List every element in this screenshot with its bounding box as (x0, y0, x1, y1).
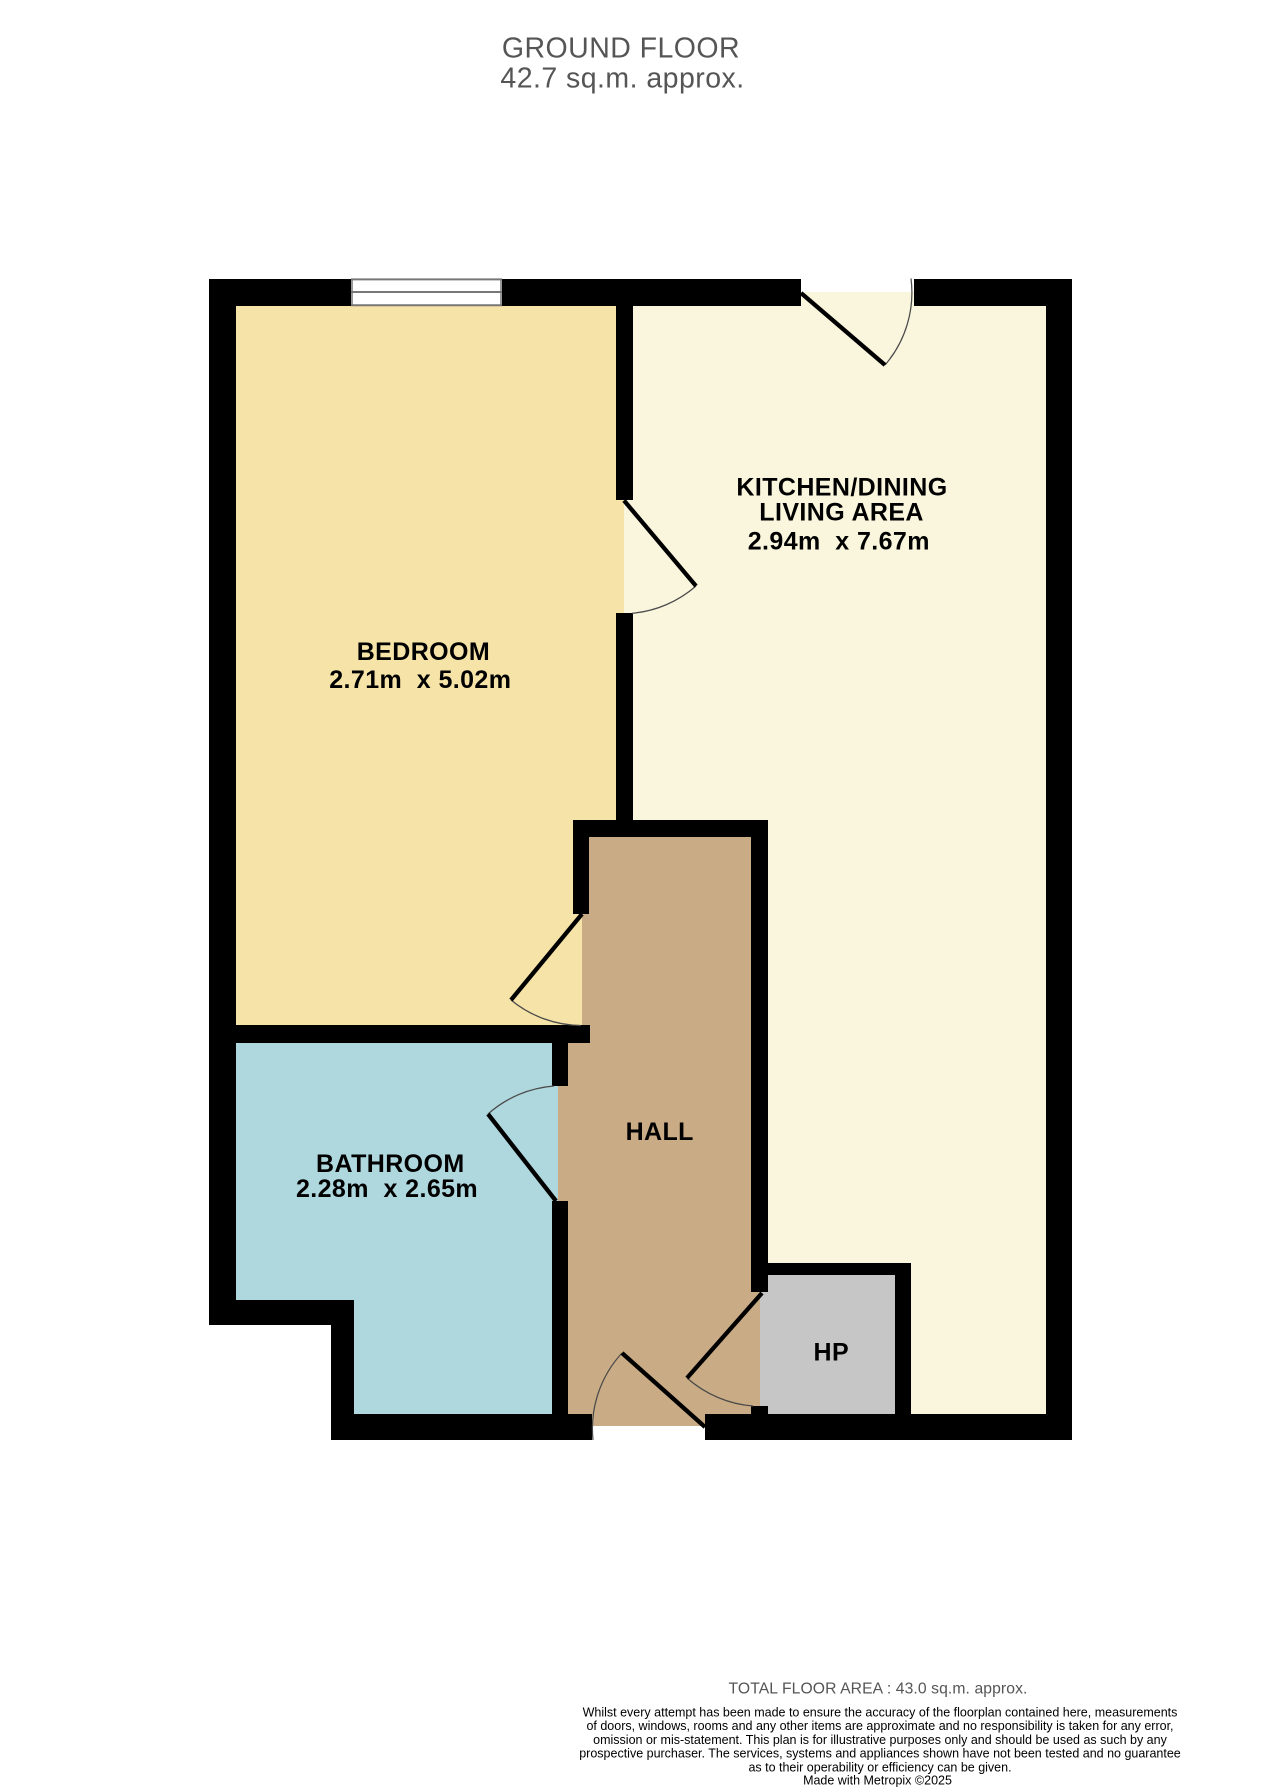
svg-text:GROUND FLOOR: GROUND FLOOR (502, 32, 740, 64)
svg-text:42.7 sq.m. approx.: 42.7 sq.m. approx. (500, 63, 744, 95)
svg-text:of doors, windows, rooms and a: of doors, windows, rooms and any other i… (586, 1719, 1173, 1733)
svg-text:Whilst every attempt has been: Whilst every attempt has been made to en… (583, 1706, 1178, 1720)
svg-text:omission or mis-statement. Thi: omission or mis-statement. This plan is … (593, 1733, 1167, 1747)
svg-text:HP: HP (814, 1339, 850, 1367)
svg-text:BEDROOM: BEDROOM (357, 638, 490, 666)
svg-text:HALL: HALL (626, 1118, 694, 1146)
svg-text:prospective purchaser. The ser: prospective purchaser. The services, sys… (579, 1747, 1181, 1761)
svg-text:TOTAL FLOOR AREA : 43.0 sq.m.: TOTAL FLOOR AREA : 43.0 sq.m. approx. (729, 1681, 1028, 1698)
svg-text:2.94m x 7.67m: 2.94m x 7.67m (748, 527, 930, 555)
svg-text:LIVING AREA: LIVING AREA (759, 498, 924, 526)
svg-text:2.28m x 2.65m: 2.28m x 2.65m (296, 1175, 478, 1203)
svg-text:Made with Metropix ©2025: Made with Metropix ©2025 (803, 1774, 952, 1788)
svg-text:BATHROOM: BATHROOM (316, 1150, 465, 1178)
svg-text:as to their operability or eff: as to their operability or efficiency ca… (748, 1760, 1011, 1774)
svg-text:2.71m x 5.02m: 2.71m x 5.02m (329, 666, 511, 694)
